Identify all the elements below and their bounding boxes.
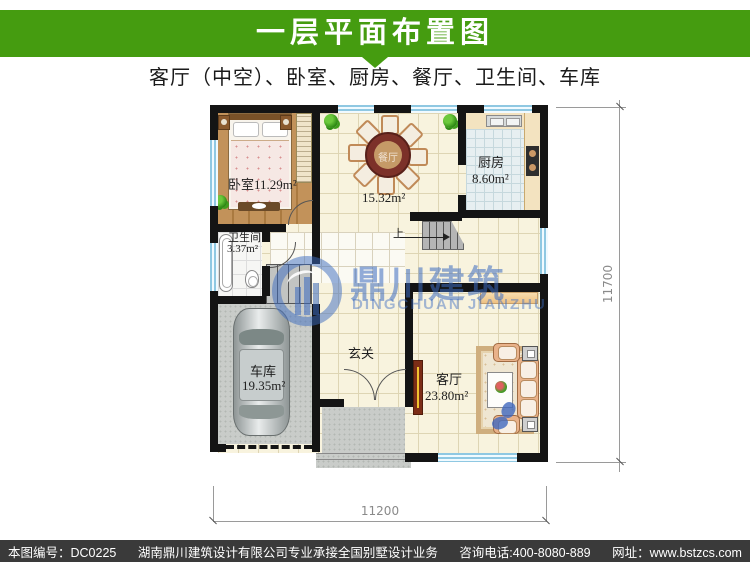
sofa-cushion — [520, 380, 537, 398]
bed-pillow — [233, 122, 259, 137]
side-table-top — [527, 350, 535, 358]
stove-burner — [529, 164, 536, 171]
dim-width-label: 11200 — [355, 504, 405, 518]
wall-living-bottom — [405, 453, 438, 462]
wall-bedroom-dining — [312, 105, 320, 232]
tv-cabinet — [413, 360, 423, 415]
sink-basin-right — [506, 118, 520, 126]
toilet-seat — [248, 276, 258, 287]
wall-bathroom-right — [262, 266, 270, 296]
car-windshield — [239, 329, 284, 345]
wall-garage-north — [210, 296, 266, 304]
watermark-en-text: DINGCHUAN JIANZHU — [352, 296, 547, 313]
wall-garage-right — [312, 304, 320, 452]
side-table — [522, 346, 538, 361]
stair-up-label: 上 — [393, 225, 404, 241]
sofa-main — [517, 357, 539, 419]
entry-step-line — [316, 459, 411, 460]
dim-height-label: 11700 — [601, 254, 615, 314]
bathroom-area-label: 3.37m² — [227, 243, 258, 255]
watermark: 鼎川建筑 DINGCHUAN JIANZHU — [270, 252, 530, 322]
hall-label: 玄关 — [348, 343, 374, 362]
tv-screen — [417, 367, 419, 408]
window-bottom-living — [438, 453, 517, 462]
plant-icon — [324, 114, 338, 128]
wall-stair-top — [410, 212, 462, 221]
plant-icon — [443, 114, 457, 128]
lamp — [221, 119, 227, 125]
footer-website: 网址：www.bstzcs.com — [612, 542, 742, 561]
window-right-hall — [540, 228, 548, 274]
bedroom-label: 卧室11.29m² — [228, 174, 297, 193]
window-left-bathroom — [210, 243, 218, 291]
dining-chair — [408, 148, 428, 166]
dim-ext-bottom-right — [556, 462, 626, 463]
footer-phone: 咨询电话:400-8080-889 — [459, 542, 590, 561]
bedroom-console — [238, 202, 280, 211]
wardrobe — [296, 113, 312, 183]
floor-plan: 餐厅 上 — [0, 0, 750, 562]
sofa-cushion — [520, 361, 537, 379]
armchair — [493, 343, 520, 362]
footer-bar: 本图编号：DC0225 湖南鼎川建筑设计有限公司专业承接全国别墅设计业务 咨询电… — [0, 538, 750, 562]
sofa-cushion — [520, 399, 537, 417]
car-rear-window — [239, 405, 284, 419]
footer-serial: 本图编号：DC0225 — [8, 542, 116, 561]
sink-basin-left — [490, 118, 504, 126]
dim-line-bottom — [213, 521, 547, 522]
dining-table: 餐厅 — [365, 132, 411, 178]
watermark-logo-icon — [272, 256, 342, 326]
entry-steps — [316, 453, 411, 468]
dim-ext-top-right — [556, 107, 626, 108]
wall-kitchen-left — [458, 195, 466, 210]
side-table-top — [527, 421, 535, 429]
wall-garage-bottom — [210, 444, 226, 452]
window-top-dining-left — [338, 105, 374, 113]
window-left-bedroom — [210, 140, 218, 206]
kitchen-area-label: 8.60m² — [472, 171, 509, 187]
stair-arrow-head — [443, 233, 450, 241]
dim-line-right — [619, 100, 620, 472]
garage-door-dashed — [226, 445, 312, 449]
wall-bathroom-right — [262, 232, 270, 242]
entry-porch — [322, 407, 405, 453]
armchair-cushion — [498, 346, 517, 360]
stove-burner — [529, 150, 536, 157]
wall-kitchen-bottom — [458, 210, 540, 218]
side-table — [522, 417, 538, 432]
dining-area-label: 15.32m² — [362, 190, 405, 206]
kitchen-label: 厨房 — [478, 152, 504, 171]
living-label: 客厅 — [436, 369, 462, 388]
footer-company: 湖南鼎川建筑设计有限公司专业承接全国别墅设计业务 — [138, 542, 438, 561]
table-flowers — [495, 381, 507, 393]
dining-room-label: 餐厅 — [367, 149, 409, 164]
window-top-kitchen — [484, 105, 532, 113]
window-top-dining-right — [411, 105, 457, 113]
wall-kitchen-left — [458, 113, 466, 165]
page: 一层平面布置图 客厅（中空）、卧室、厨房、餐厅、卫生间、车库 — [0, 0, 750, 562]
wall-living-bottom — [517, 453, 548, 462]
wall-right — [540, 105, 548, 462]
nightstand — [280, 115, 292, 130]
logo-building-bar — [313, 283, 319, 315]
lamp — [283, 119, 289, 125]
nightstand — [218, 115, 230, 130]
dim-ext-bottom-right2 — [546, 486, 547, 522]
decor-bowl — [252, 203, 266, 209]
garage-area-label: 19.35m² — [242, 378, 285, 394]
toilet — [245, 270, 259, 288]
wall-entry — [320, 399, 344, 407]
dim-ext-bottom-left — [213, 486, 214, 522]
living-area-label: 23.80m² — [425, 388, 468, 404]
stair-direction-line — [400, 237, 444, 238]
logo-building-bar — [295, 287, 301, 315]
kitchen-sink — [486, 115, 522, 127]
kitchen-stove — [526, 146, 539, 176]
